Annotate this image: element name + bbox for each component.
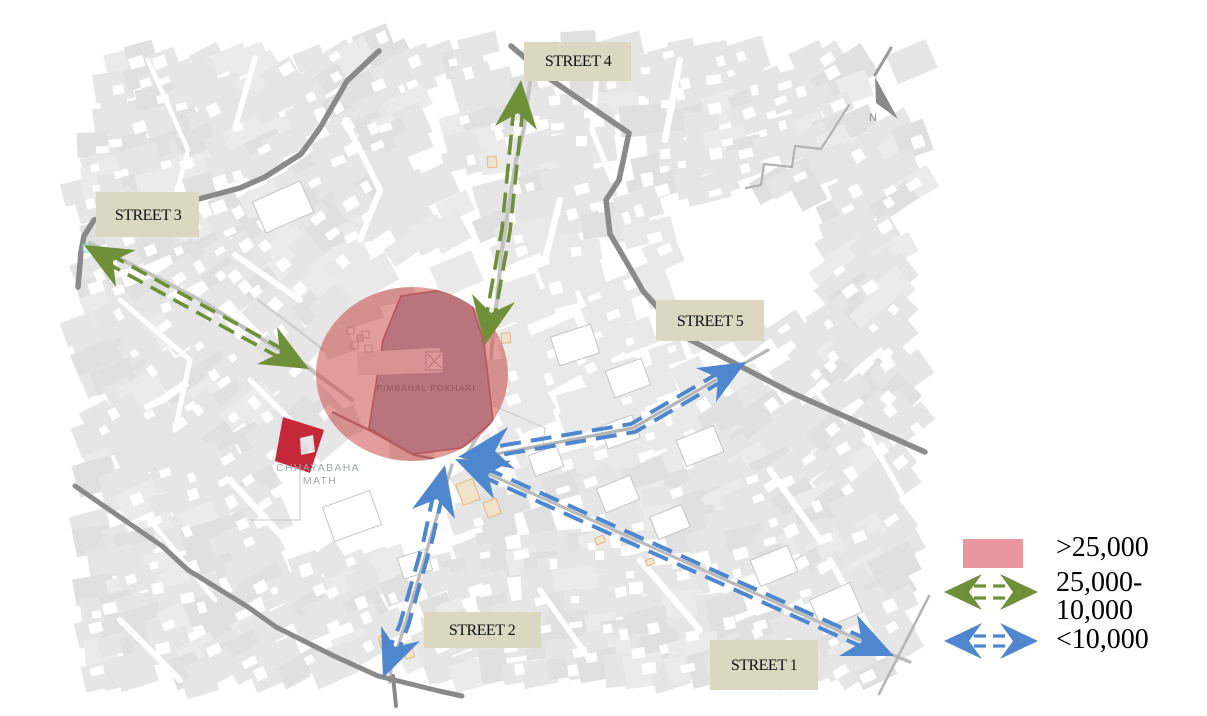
svg-text:STREET 4: STREET 4 xyxy=(545,53,612,70)
svg-text:MATH: MATH xyxy=(303,475,337,487)
svg-text:STREET 3: STREET 3 xyxy=(115,207,182,224)
svg-text:10,000: 10,000 xyxy=(1056,595,1133,626)
svg-text:STREET 1: STREET 1 xyxy=(731,657,798,674)
svg-text:STREET 5: STREET 5 xyxy=(677,313,744,330)
svg-text:N: N xyxy=(869,112,877,124)
svg-text:PIMBAHAL POKHARI: PIMBAHAL POKHARI xyxy=(376,383,475,393)
svg-text:STREET 2: STREET 2 xyxy=(449,622,516,639)
svg-text:>25,000: >25,000 xyxy=(1056,532,1149,563)
svg-text:25,000-: 25,000- xyxy=(1056,567,1142,598)
svg-text:<10,000: <10,000 xyxy=(1056,624,1149,655)
svg-text:CHHAYABAHA: CHHAYABAHA xyxy=(276,462,360,474)
